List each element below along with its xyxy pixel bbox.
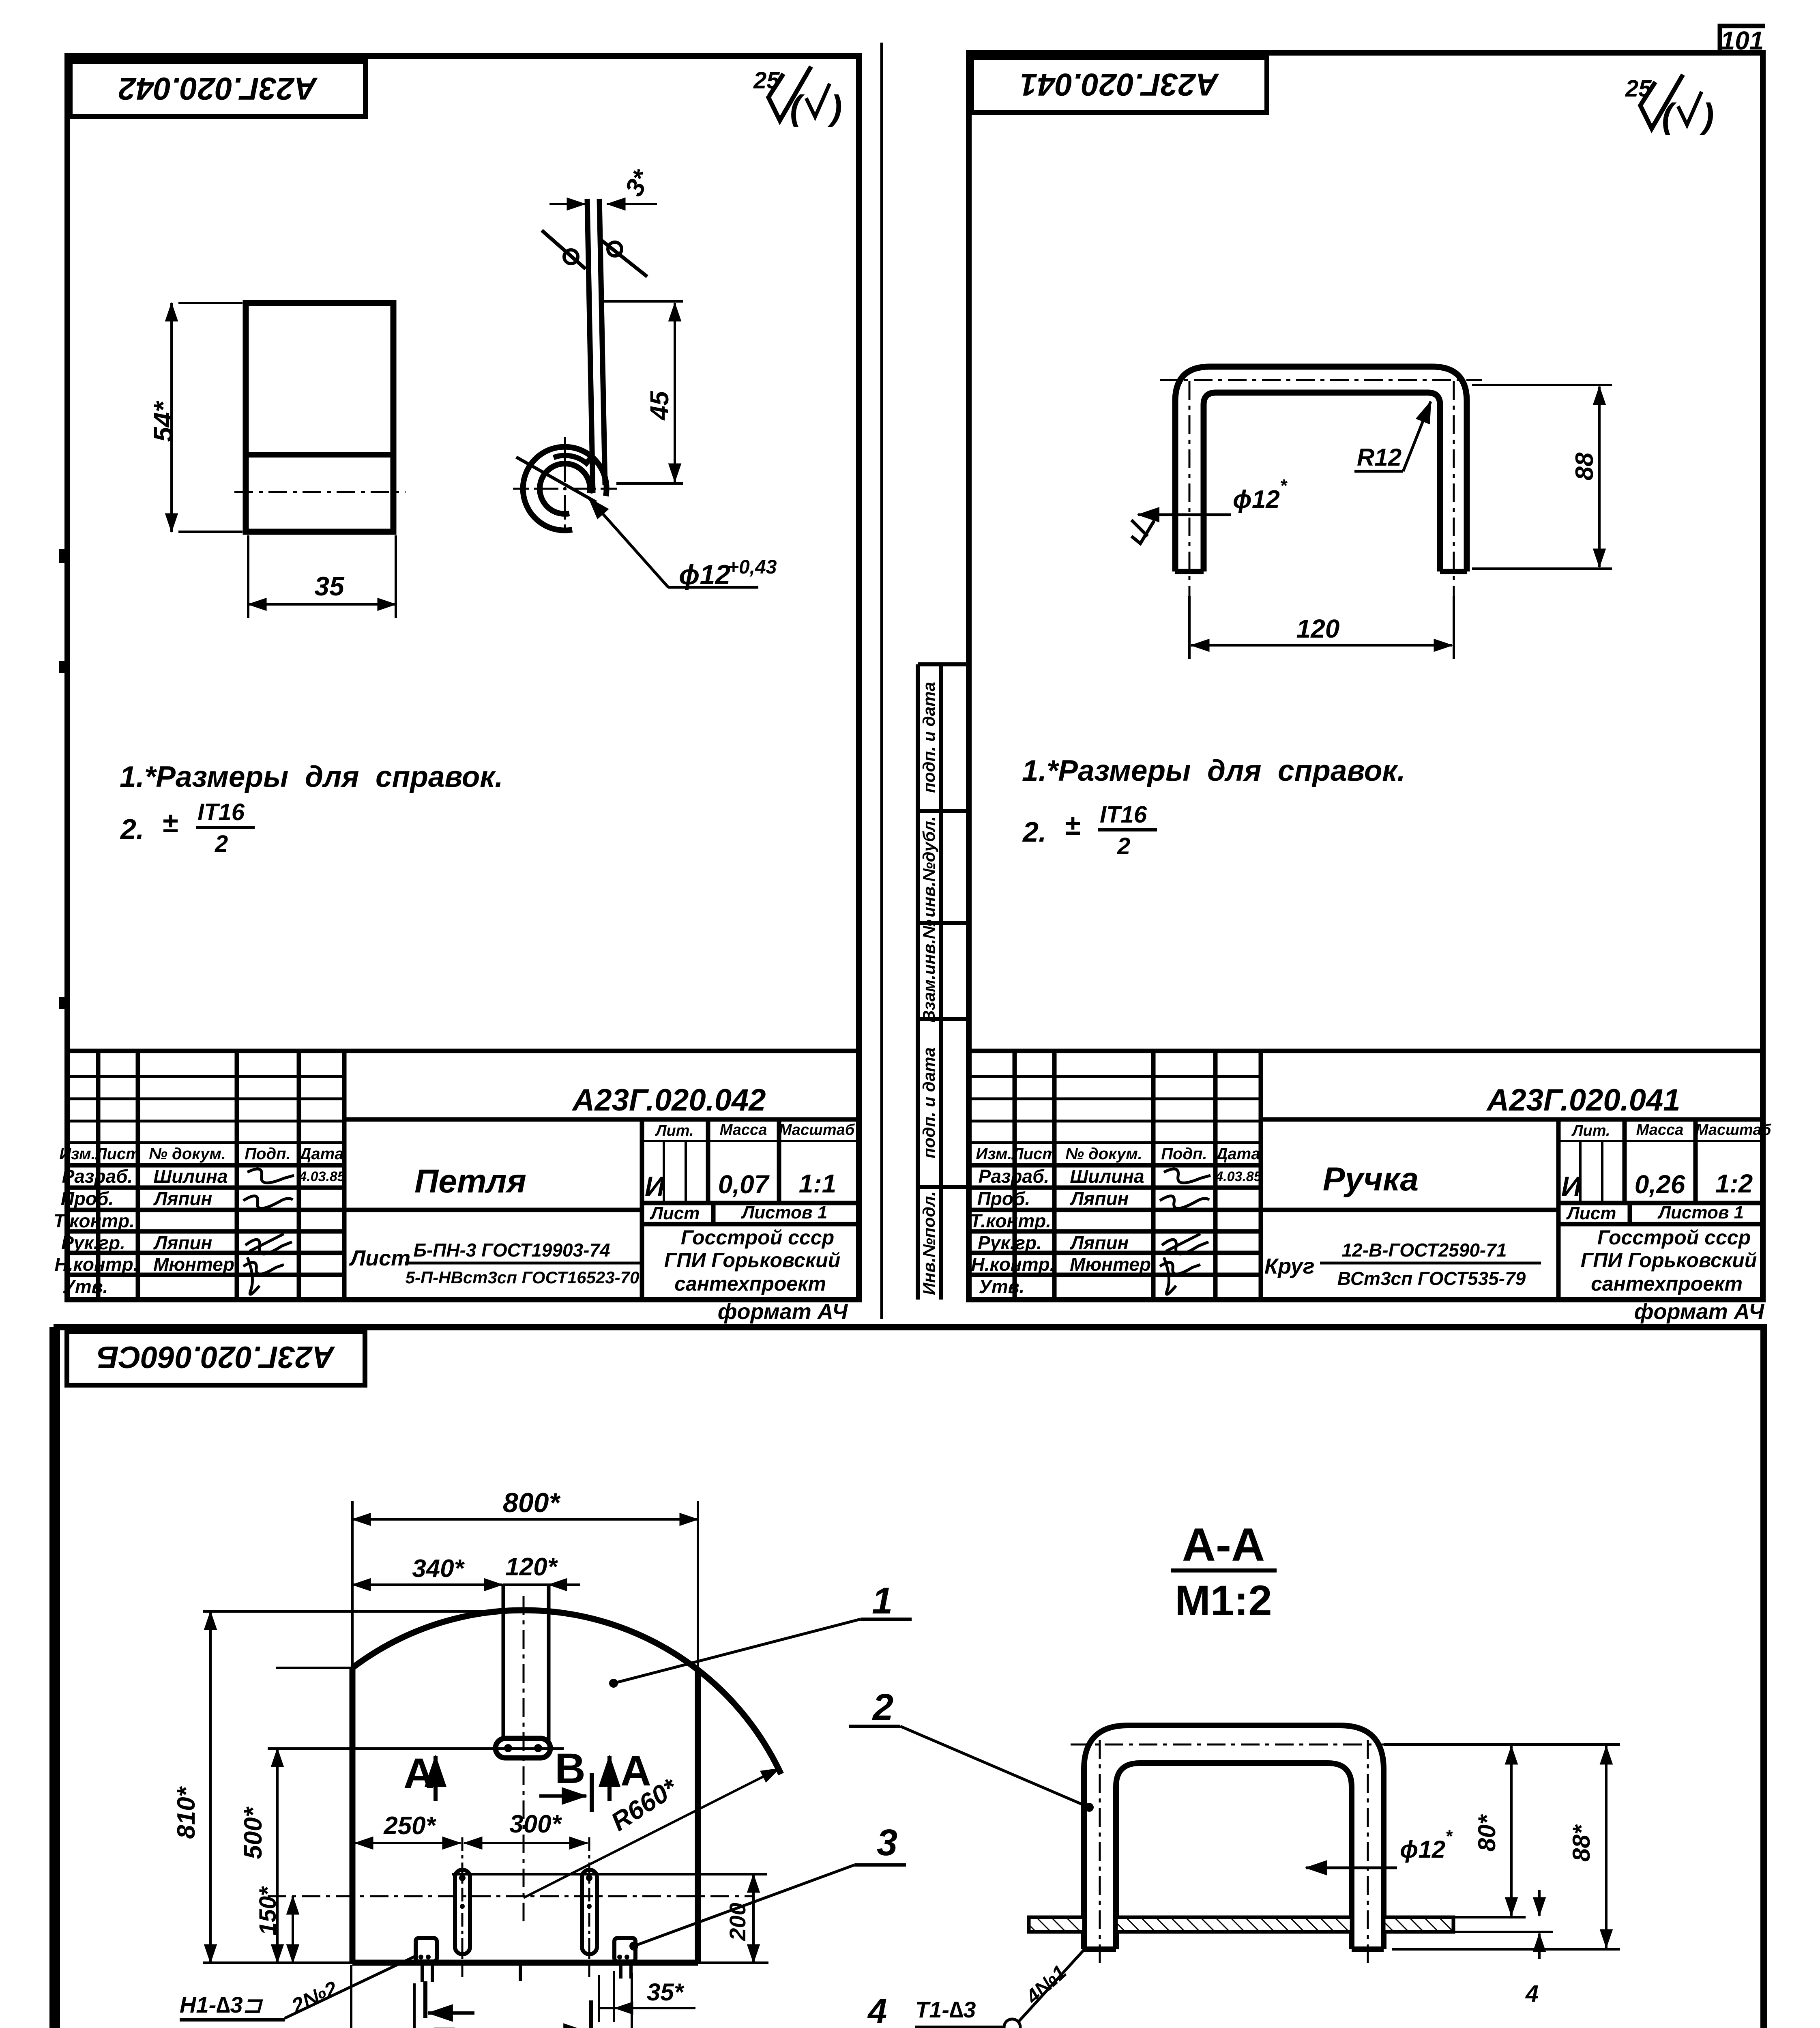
svg-text:Листов 1: Листов 1 [1657,1203,1744,1222]
svg-text:Изм.: Изм. [976,1145,1012,1163]
svg-text:*: * [1280,476,1288,496]
svg-text:800*: 800* [503,1487,561,1518]
svg-text:ϕ12: ϕ12 [1233,486,1280,513]
svg-text:Т.контр.: Т.контр. [54,1210,135,1231]
svg-text:35*: 35* [647,1979,685,2006]
svg-text:Б-ПН-3 ГОСТ19903-74: Б-ПН-3 ГОСТ19903-74 [413,1240,610,1261]
svg-text:Н.контр.: Н.контр. [55,1254,139,1275]
svg-text:Т.контр.: Т.контр. [970,1210,1051,1231]
svg-text:88*: 88* [1568,1824,1595,1862]
svg-text:Проб.: Проб. [977,1188,1030,1209]
svg-text:Дата: Дата [298,1145,344,1163]
svg-text:А: А [403,1750,434,1797]
svg-text:В: В [555,1745,586,1792]
svg-text:Н.контр.: Н.контр. [971,1254,1055,1275]
svg-text:Листов 1: Листов 1 [741,1203,827,1222]
svg-text:Мюнтер: Мюнтер [153,1254,234,1275]
svg-text:*: * [1445,1826,1453,1846]
svg-text:И: И [1561,1171,1582,1202]
svg-text:R12: R12 [1357,444,1401,471]
svg-text:Рук.гр.: Рук.гр. [978,1232,1042,1253]
svg-text:Проб.: Проб. [61,1188,114,1209]
svg-text:Мюнтер: Мюнтер [1070,1254,1151,1275]
svg-text:0,26: 0,26 [1635,1170,1685,1199]
svg-text:300*: 300* [509,1810,562,1838]
svg-text:Подп.: Подп. [245,1145,290,1163]
svg-text:№ докум.: № докум. [1065,1145,1142,1163]
svg-text:А23Г.020.041: А23Г.020.041 [1020,67,1219,103]
svg-text:Петля: Петля [414,1163,526,1200]
svg-text:Масса: Масса [720,1121,767,1139]
svg-text:Подп.: Подп. [1161,1145,1207,1163]
svg-text:101: 101 [1721,26,1764,55]
svg-text:Ляпин: Ляпин [1070,1232,1129,1253]
svg-text:1:2: 1:2 [1715,1169,1753,1198]
svg-text:Утв.: Утв. [62,1276,108,1297]
svg-text:4.03.85: 4.03.85 [298,1169,346,1184]
svg-text:Т1-∆3: Т1-∆3 [915,1997,976,2022]
svg-text:Ляпин: Ляпин [153,1188,212,1209]
svg-text:Масштаб: Масштаб [1696,1121,1772,1139]
svg-text:2.: 2. [1022,816,1046,848]
svg-text:№ докум.: № докум. [149,1145,226,1163]
svg-text:Лист: Лист [650,1203,700,1223]
svg-text:А-А: А-А [1182,1519,1265,1571]
svg-text:45: 45 [645,391,674,421]
svg-text:ϕ12: ϕ12 [679,559,730,590]
svg-text:ГПИ Горьковский: ГПИ Горьковский [664,1249,841,1272]
svg-text:Ляпин: Ляпин [153,1232,212,1253]
svg-text:Лист: Лист [1566,1203,1616,1223]
svg-text:Рук.гр.: Рук.гр. [61,1232,125,1253]
svg-text:120*: 120* [505,1553,558,1581]
svg-text:2: 2 [215,831,228,857]
svg-text:формат АЧ: формат АЧ [1634,1300,1765,1324]
svg-text:Шилина: Шилина [153,1166,227,1187]
svg-text:ϕ12: ϕ12 [1400,1836,1445,1863]
svg-text:сантехпроект: сантехпроект [1591,1272,1743,1295]
svg-text:12-В-ГОСТ2590-71: 12-В-ГОСТ2590-71 [1342,1240,1507,1261]
svg-text:Разраб.: Разраб. [979,1166,1050,1187]
svg-text:2: 2 [872,1686,893,1728]
svg-text:54*: 54* [148,400,178,442]
svg-text:Лит.: Лит. [1571,1122,1610,1139]
svg-text:4: 4 [867,1992,887,2028]
svg-text:сантехпроект: сантехпроект [674,1272,826,1295]
svg-text:5-П-НВст3сп ГОСТ16523-70: 5-П-НВст3сп ГОСТ16523-70 [406,1268,640,1287]
svg-text:Б: Б [431,2019,460,2028]
svg-text:Разраб.: Разраб. [62,1166,133,1187]
svg-text:1: 1 [872,1580,893,1622]
svg-text:3: 3 [877,1822,897,1863]
svg-text:инв.№дубл.: инв.№дубл. [919,816,938,917]
svg-text:Лист: Лист [94,1145,140,1163]
svg-text:М1:2: М1:2 [1175,1577,1272,1624]
svg-text:Взам.инв.№: Взам.инв.№ [919,919,938,1023]
svg-text:Масса: Масса [1636,1121,1684,1139]
svg-text:Ручка: Ручка [1323,1161,1419,1198]
svg-text:1.*Размеры для справок.: 1.*Размеры для справок. [120,760,503,793]
svg-text:Госстрой ссср: Госстрой ссср [681,1226,834,1249]
svg-text:Шилина: Шилина [1070,1166,1144,1187]
svg-text:340*: 340* [412,1555,465,1583]
svg-text:Лист: Лист [349,1246,410,1270]
svg-text:А23Г.020.042: А23Г.020.042 [571,1083,766,1117]
svg-text:Масштаб: Масштаб [779,1121,855,1139]
svg-text:500*: 500* [239,1806,267,1859]
svg-text:+0,43: +0,43 [728,556,777,578]
svg-text:подп. и дата: подп. и дата [919,682,938,793]
svg-text:Лит.: Лит. [655,1122,693,1139]
svg-text:Лист: Лист [1011,1145,1057,1163]
svg-text:150*: 150* [255,1886,281,1936]
svg-text:А23Г.020.041: А23Г.020.041 [1486,1083,1680,1117]
svg-text:25: 25 [753,67,780,94]
svg-text:Дата: Дата [1215,1145,1260,1163]
svg-text:88: 88 [1571,452,1599,480]
svg-text:1.*Размеры для справок.: 1.*Размеры для справок. [1022,754,1406,787]
svg-text:Инв.№подл.: Инв.№подл. [919,1191,938,1295]
svg-text:2: 2 [1117,833,1130,859]
svg-text:810*: 810* [172,1786,200,1839]
svg-text:IT16: IT16 [1100,801,1147,828]
svg-text:Утв.: Утв. [979,1276,1025,1297]
svg-text:А23Г.020.060СБ: А23Г.020.060СБ [97,1340,335,1374]
svg-text:0,07: 0,07 [718,1170,770,1199]
svg-text:4.03.85: 4.03.85 [1215,1169,1262,1184]
svg-text:ВСт3сп ГОСТ535-79: ВСт3сп ГОСТ535-79 [1337,1268,1526,1289]
svg-text:И: И [645,1171,665,1202]
svg-text:А: А [620,1747,651,1795]
svg-text:А23Г.020.042: А23Г.020.042 [118,71,318,107]
svg-text:250*: 250* [383,1812,436,1840]
svg-text:4: 4 [1525,1981,1539,2007]
svg-text:Круг: Круг [1264,1254,1315,1278]
svg-text:подп. и дата: подп. и дата [919,1047,938,1158]
svg-text:±: ± [162,807,178,838]
svg-text:35: 35 [314,571,345,601]
svg-text:формат АЧ: формат АЧ [718,1300,848,1324]
svg-text:120: 120 [1296,614,1340,643]
svg-text:25: 25 [1625,75,1652,102]
svg-text:Н1-∆3⊐: Н1-∆3⊐ [180,1992,264,2017]
svg-text:±: ± [1065,809,1080,841]
svg-text:2.: 2. [120,813,144,845]
svg-text:Ляпин: Ляпин [1070,1188,1129,1209]
svg-text:IT16: IT16 [197,799,245,825]
svg-text:1:1: 1:1 [799,1169,837,1198]
svg-text:80*: 80* [1473,1814,1500,1852]
svg-text:ГПИ Горьковский: ГПИ Горьковский [1581,1249,1757,1272]
svg-text:Изм.: Изм. [59,1145,95,1163]
svg-text:Госстрой ссср: Госстрой ссср [1597,1226,1751,1249]
